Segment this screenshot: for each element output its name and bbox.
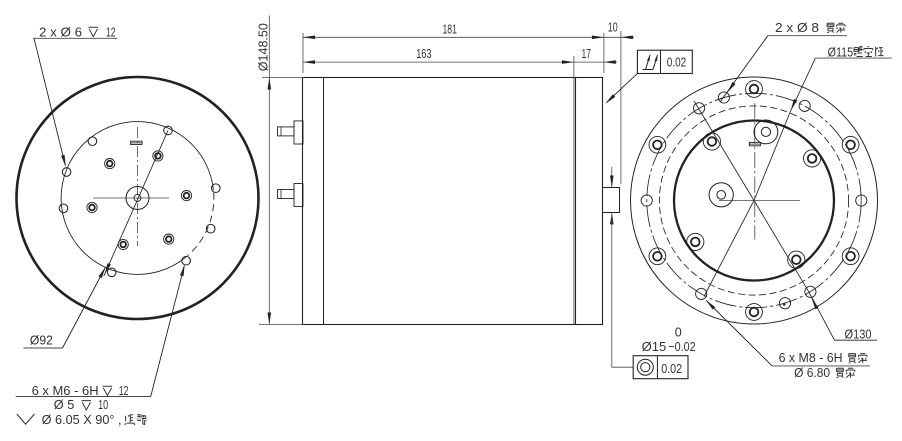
svg-text:10: 10 bbox=[98, 397, 108, 412]
svg-text:12: 12 bbox=[119, 383, 129, 398]
svg-text:10: 10 bbox=[608, 21, 618, 35]
svg-text:Ø 5: Ø 5 bbox=[54, 397, 75, 412]
svg-text:Ø115: Ø115 bbox=[828, 44, 854, 59]
svg-text:163: 163 bbox=[416, 47, 431, 61]
svg-text:17: 17 bbox=[582, 47, 592, 61]
svg-text:6 x M8 - 6H: 6 x M8 - 6H bbox=[779, 350, 843, 365]
svg-text:6 x M6 - 6H: 6 x M6 - 6H bbox=[32, 383, 99, 398]
svg-text:Ø148.50: Ø148.50 bbox=[256, 23, 271, 71]
svg-text:Ø92: Ø92 bbox=[30, 333, 53, 348]
svg-text:0: 0 bbox=[675, 325, 682, 340]
svg-text:Ø15: Ø15 bbox=[642, 339, 667, 354]
svg-text:181: 181 bbox=[443, 22, 457, 36]
svg-text:0.02: 0.02 bbox=[667, 56, 686, 70]
svg-text:2 x Ø 6: 2 x Ø 6 bbox=[39, 25, 82, 40]
svg-text:2 x Ø 8: 2 x Ø 8 bbox=[775, 20, 819, 35]
svg-text:0.02: 0.02 bbox=[661, 362, 682, 376]
svg-text:−0.02: −0.02 bbox=[668, 339, 695, 354]
svg-text:Ø 6.05 X 90° ,: Ø 6.05 X 90° , bbox=[42, 412, 122, 427]
svg-text:Ø 6.80: Ø 6.80 bbox=[794, 365, 830, 380]
svg-text:Ø130: Ø130 bbox=[845, 326, 872, 341]
svg-text:12: 12 bbox=[106, 25, 116, 40]
